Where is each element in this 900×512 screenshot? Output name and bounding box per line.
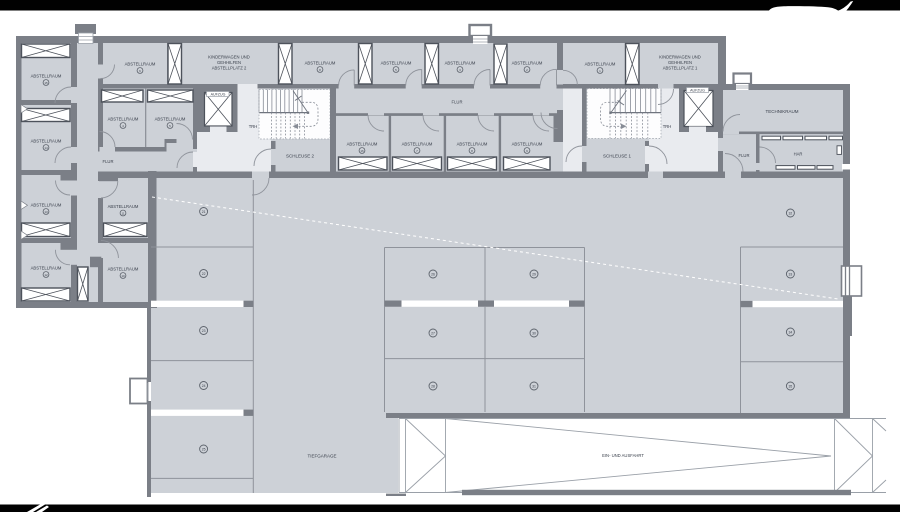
svg-text:SCHLEUSE 2: SCHLEUSE 2 <box>286 154 315 159</box>
svg-text:AUFZUG: AUFZUG <box>211 93 226 97</box>
svg-text:33: 33 <box>789 273 793 277</box>
svg-text:ABSTELLRAUM: ABSTELLRAUM <box>31 203 62 208</box>
svg-text:SCHLEUSE 1: SCHLEUSE 1 <box>603 154 632 159</box>
svg-text:GEHHILFEN: GEHHILFEN <box>668 60 692 65</box>
svg-text:ABSTELLRAUM: ABSTELLRAUM <box>457 142 488 147</box>
svg-text:ABSTELLRAUM: ABSTELLRAUM <box>585 62 616 67</box>
svg-text:16: 16 <box>360 149 364 153</box>
svg-text:HAR: HAR <box>794 152 803 157</box>
svg-text:27: 27 <box>431 332 435 336</box>
svg-text:ABSTELLRAUM: ABSTELLRAUM <box>108 117 139 122</box>
svg-text:FLUR: FLUR <box>739 153 750 158</box>
svg-text:AUFZUG: AUFZUG <box>690 89 705 93</box>
svg-text:EIN- UND AUSFAHRT: EIN- UND AUSFAHRT <box>602 453 644 458</box>
svg-text:TRH: TRH <box>663 124 672 129</box>
svg-text:ABSTELLRAUM: ABSTELLRAUM <box>512 142 543 147</box>
svg-text:KINDERWAGEN UND: KINDERWAGEN UND <box>208 55 250 60</box>
svg-text:ABSTELLPLATZ 2: ABSTELLPLATZ 2 <box>212 66 247 71</box>
svg-text:ABSTELLRAUM: ABSTELLRAUM <box>402 142 433 147</box>
svg-text:22: 22 <box>202 272 206 276</box>
svg-text:11: 11 <box>121 211 124 215</box>
svg-text:14: 14 <box>44 146 48 150</box>
svg-text:ABSTELLRAUM: ABSTELLRAUM <box>31 139 62 144</box>
svg-text:KINDERWAGEN UND: KINDERWAGEN UND <box>659 55 701 60</box>
svg-text:21: 21 <box>202 210 206 214</box>
svg-text:ABSTELLPLATZ 1: ABSTELLPLATZ 1 <box>663 66 698 71</box>
svg-text:FLUR: FLUR <box>452 100 463 105</box>
svg-text:ABSTELLRAUM: ABSTELLRAUM <box>125 62 156 67</box>
svg-text:GEHHILFEN: GEHHILFEN <box>217 60 241 65</box>
svg-text:ABSTELLRAUM: ABSTELLRAUM <box>305 61 336 66</box>
svg-text:10: 10 <box>121 274 125 278</box>
svg-text:ABSTELLRAUM: ABSTELLRAUM <box>155 117 186 122</box>
svg-text:ABSTELLRAUM: ABSTELLRAUM <box>108 204 139 209</box>
svg-text:31: 31 <box>532 385 536 389</box>
svg-text:ABSTELLRAUM: ABSTELLRAUM <box>31 266 62 271</box>
svg-text:28: 28 <box>431 385 435 389</box>
svg-text:34: 34 <box>789 331 793 335</box>
svg-text:13: 13 <box>44 210 48 214</box>
svg-text:ABSTELLRAUM: ABSTELLRAUM <box>381 61 412 66</box>
svg-text:26: 26 <box>431 273 435 277</box>
svg-text:ABSTELLRAUM: ABSTELLRAUM <box>31 74 62 79</box>
svg-text:23: 23 <box>202 329 206 333</box>
svg-text:12: 12 <box>44 273 48 277</box>
svg-text:15: 15 <box>44 81 48 85</box>
svg-text:TRH: TRH <box>249 124 258 129</box>
svg-text:ABSTELLRAUM: ABSTELLRAUM <box>445 61 476 66</box>
svg-text:32: 32 <box>789 212 793 216</box>
svg-text:ABSTELLRAUM: ABSTELLRAUM <box>512 61 543 66</box>
svg-text:29: 29 <box>532 273 536 277</box>
svg-text:30: 30 <box>532 332 536 336</box>
svg-text:FLUR: FLUR <box>103 159 114 164</box>
svg-text:ABSTELLRAUM: ABSTELLRAUM <box>108 267 139 272</box>
svg-text:TIEFGARAGE: TIEFGARAGE <box>307 454 336 459</box>
svg-text:25: 25 <box>202 448 206 452</box>
svg-text:TECHNIKRAUM: TECHNIKRAUM <box>765 109 798 114</box>
svg-text:24: 24 <box>202 384 206 388</box>
svg-text:ABSTELLRAUM: ABSTELLRAUM <box>347 142 378 147</box>
svg-text:35: 35 <box>789 385 793 389</box>
